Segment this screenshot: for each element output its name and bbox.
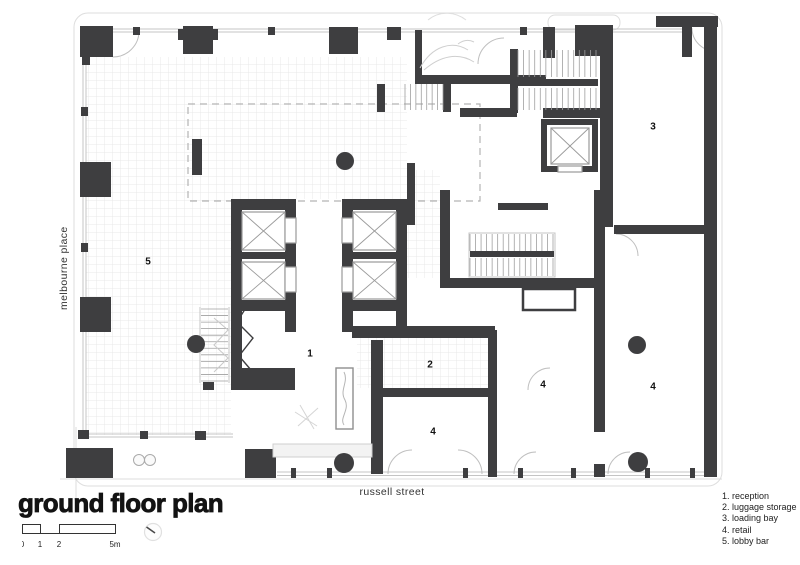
scale-1: 1 [38,540,43,549]
scale-bar: 0 1 2 5m [22,524,142,550]
utility-box [523,289,575,310]
room-label-3: 3 [650,122,656,133]
scale-5m: 5m [109,540,120,549]
plan-drawing [0,0,800,565]
street-label-russell: russell street [359,486,424,498]
legend-item: 4. retail [722,525,797,536]
room-label-2: 2 [427,360,433,371]
street-label-melbourne: melbourne place [58,226,70,310]
legend-item: 2. luggage storage [722,502,797,513]
scale-0: 0 [22,540,25,549]
stair-top-right-lower [518,88,596,110]
floor-plan-page: ground floor plan russell street melbour… [0,0,800,565]
stair-central [469,233,555,277]
legend-item: 1. reception [722,491,797,502]
room-label-1: 1 [307,349,313,360]
room-label-4: 4 [540,380,546,391]
room-label-4: 4 [650,382,656,393]
legend-item: 5. lobby bar [722,536,797,547]
legend-item: 3. loading bay [722,513,797,524]
stair-entry [405,84,443,110]
page-title: ground floor plan [18,488,223,519]
north-compass-icon [142,521,164,543]
room-label-4: 4 [430,427,436,438]
legend: 1. reception2. luggage storage3. loading… [722,491,797,547]
room-label-5: 5 [145,257,151,268]
elevator-top-right [544,122,595,172]
elevator-core-left [231,199,296,311]
scale-2: 2 [57,540,62,549]
elevator-core-right [342,199,407,311]
